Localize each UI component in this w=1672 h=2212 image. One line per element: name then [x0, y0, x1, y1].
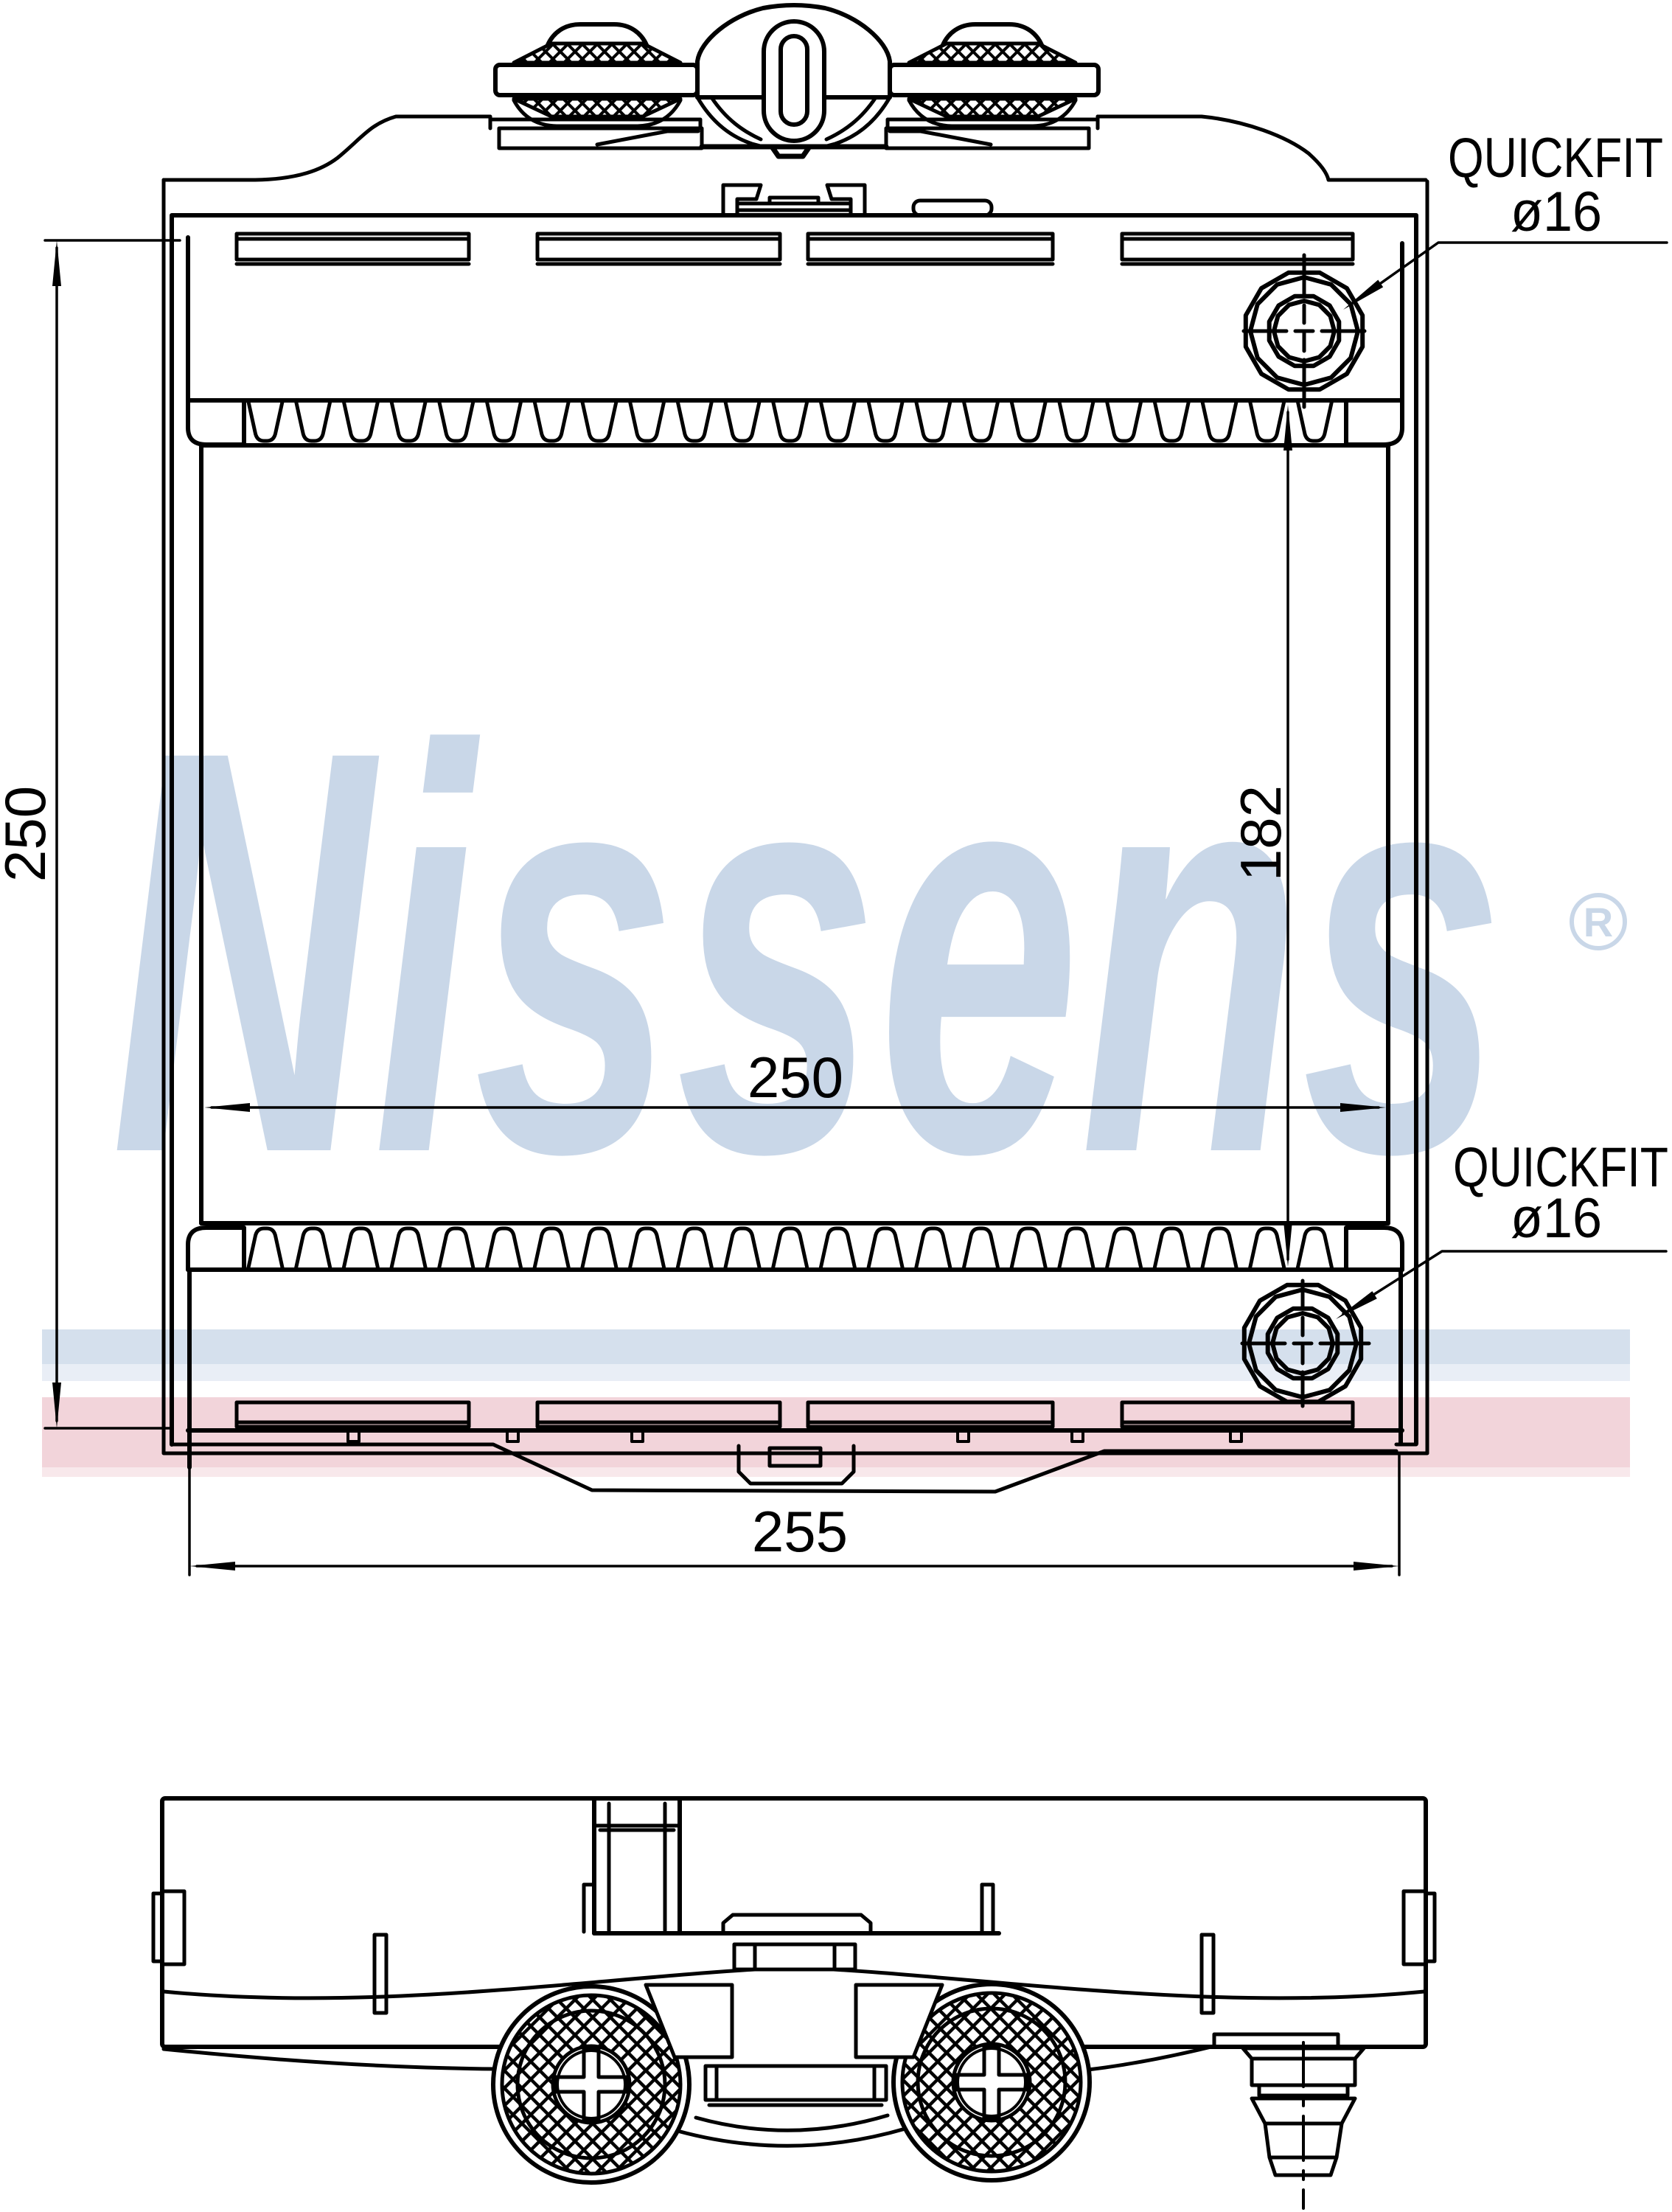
svg-text:255: 255	[752, 1499, 848, 1564]
svg-text:250: 250	[748, 1045, 843, 1110]
svg-text:R: R	[1584, 899, 1613, 945]
svg-text:ø16: ø16	[1511, 1187, 1602, 1250]
svg-text:ø16: ø16	[1511, 181, 1602, 243]
svg-text:250: 250	[0, 786, 58, 882]
svg-text:182: 182	[1228, 785, 1293, 881]
svg-text:Nissens: Nissens	[111, 631, 1504, 1272]
